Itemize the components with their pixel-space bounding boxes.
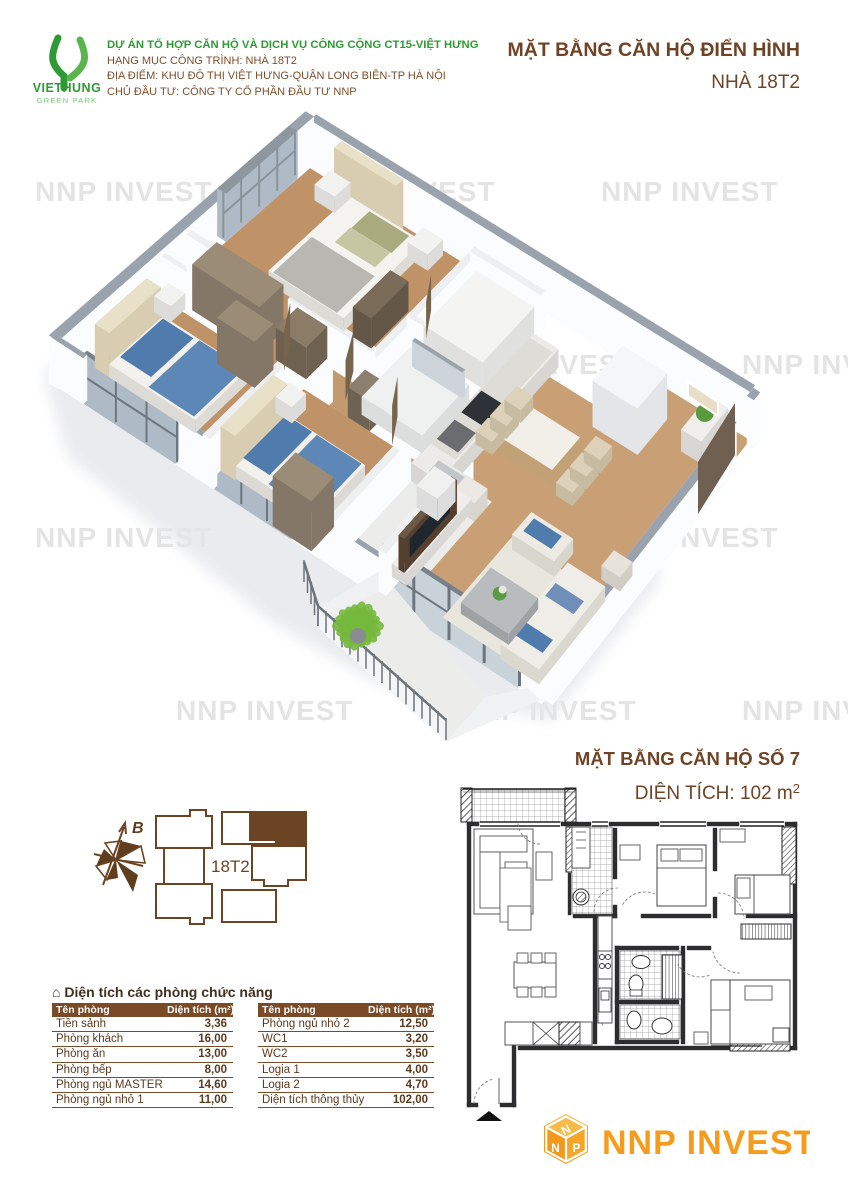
svg-text:N: N — [551, 1141, 560, 1155]
svg-text:18T2: 18T2 — [211, 857, 250, 876]
svg-text:NNP INVEST: NNP INVEST — [602, 1124, 810, 1162]
svg-text:P: P — [572, 1141, 580, 1155]
svg-text:B: B — [132, 820, 144, 837]
